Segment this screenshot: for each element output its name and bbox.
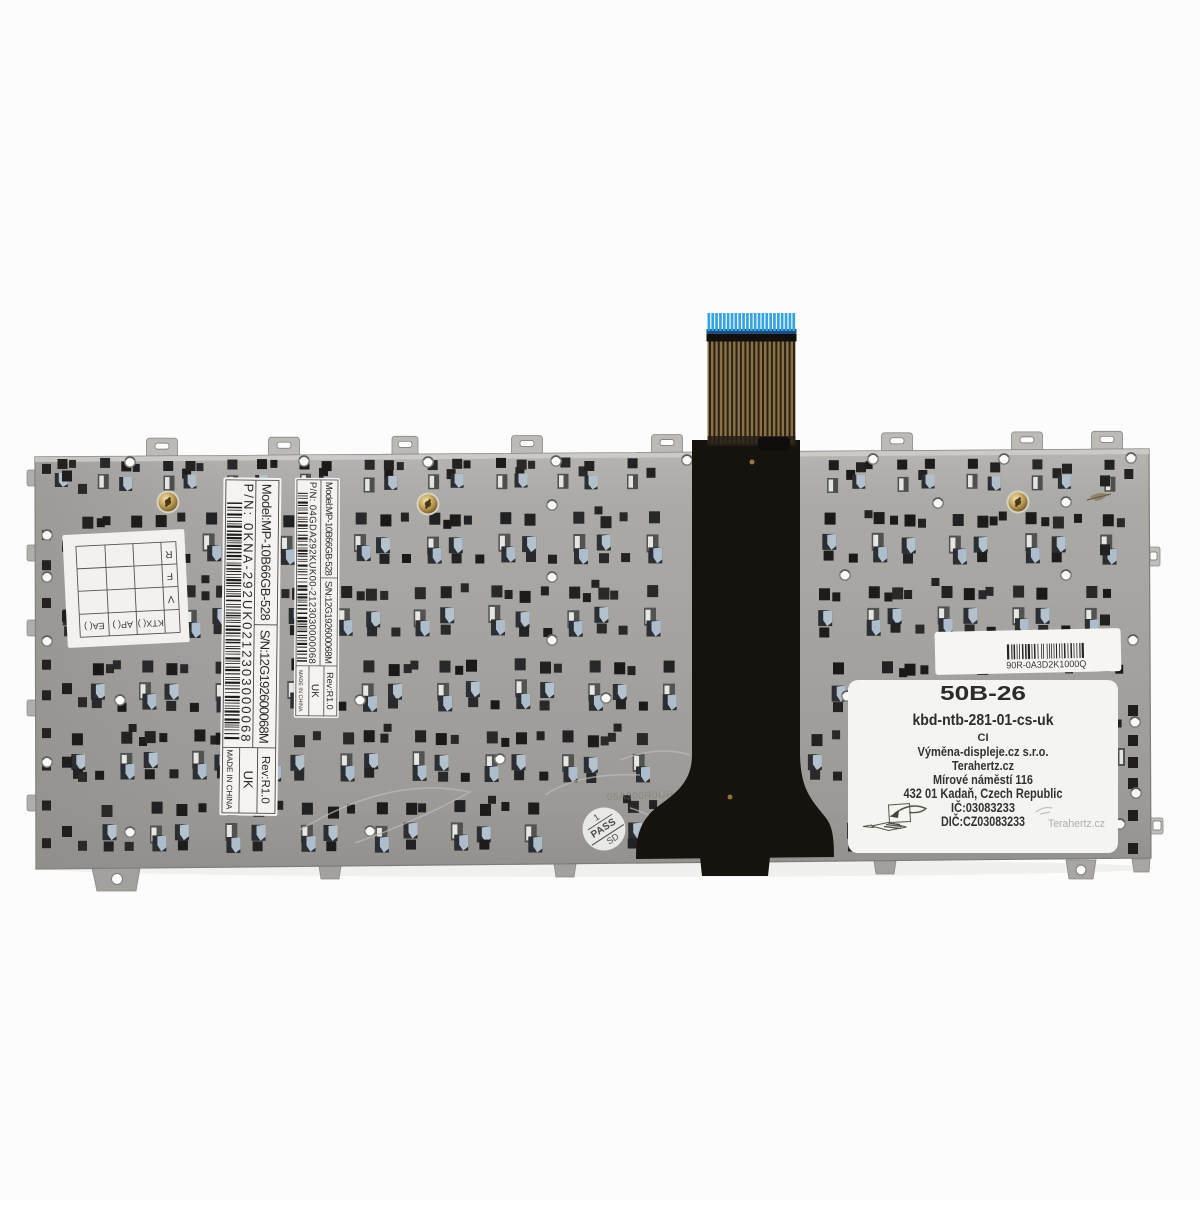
- svg-text:Model:MP-10B66GB-528: Model:MP-10B66GB-528: [258, 484, 275, 621]
- svg-text:AP( ): AP( ): [112, 619, 133, 630]
- svg-text:EA( ): EA( ): [84, 621, 105, 632]
- svg-text:Terahertz.cz: Terahertz.cz: [952, 758, 1014, 773]
- svg-text:R: R: [165, 548, 173, 559]
- svg-text:F: F: [167, 570, 174, 581]
- svg-text:P/N: 0KNA-292UK0212303000068: P/N: 0KNA-292UK0212303000068: [238, 484, 256, 742]
- svg-text:50B-26: 50B-26: [940, 683, 1026, 705]
- svg-text:KTX( ): KTX( ): [138, 618, 164, 629]
- svg-text:V: V: [167, 593, 175, 604]
- svg-text:IČ:03083233: IČ:03083233: [951, 800, 1015, 815]
- svg-text:P/N: 04GDA292KUK00-2123030000: P/N: 04GDA292KUK00-2123030000068: [306, 482, 318, 664]
- svg-text:kbd-ntb-281-01-cs-uk: kbd-ntb-281-01-cs-uk: [913, 712, 1054, 729]
- svg-text:DIČ:CZ03083233: DIČ:CZ03083233: [941, 814, 1025, 829]
- svg-text:UK: UK: [309, 684, 320, 698]
- svg-text:MADE IN CHINA: MADE IN CHINA: [224, 749, 234, 810]
- svg-text:S/N:12G192600068M: S/N:12G192600068M: [256, 630, 272, 744]
- svg-text:Terahertz.cz: Terahertz.cz: [1048, 818, 1105, 830]
- svg-text:Model:MP-10B66GB-528: Model:MP-10B66GB-528: [322, 482, 333, 576]
- svg-text:432 01 Kadaň, Czech Republic: 432 01 Kadaň, Czech Republic: [904, 786, 1063, 801]
- svg-text:Výměna-displeje.cz s.r.o.: Výměna-displeje.cz s.r.o.: [918, 744, 1049, 759]
- svg-text:90R-0A3D2K1000Q: 90R-0A3D2K1000Q: [1006, 659, 1086, 672]
- svg-text:UK: UK: [241, 770, 256, 789]
- svg-text:CI: CI: [978, 732, 989, 744]
- svg-text:S/N:12G192600068M: S/N:12G192600068M: [322, 581, 333, 664]
- svg-text:MADE IN CHINA: MADE IN CHINA: [297, 670, 303, 712]
- svg-text:Mírové náměstí 116: Mírové náměstí 116: [933, 772, 1033, 787]
- svg-text:Rev:R1.0: Rev:R1.0: [325, 672, 335, 710]
- svg-text:Rev:R1.0: Rev:R1.0: [259, 756, 272, 804]
